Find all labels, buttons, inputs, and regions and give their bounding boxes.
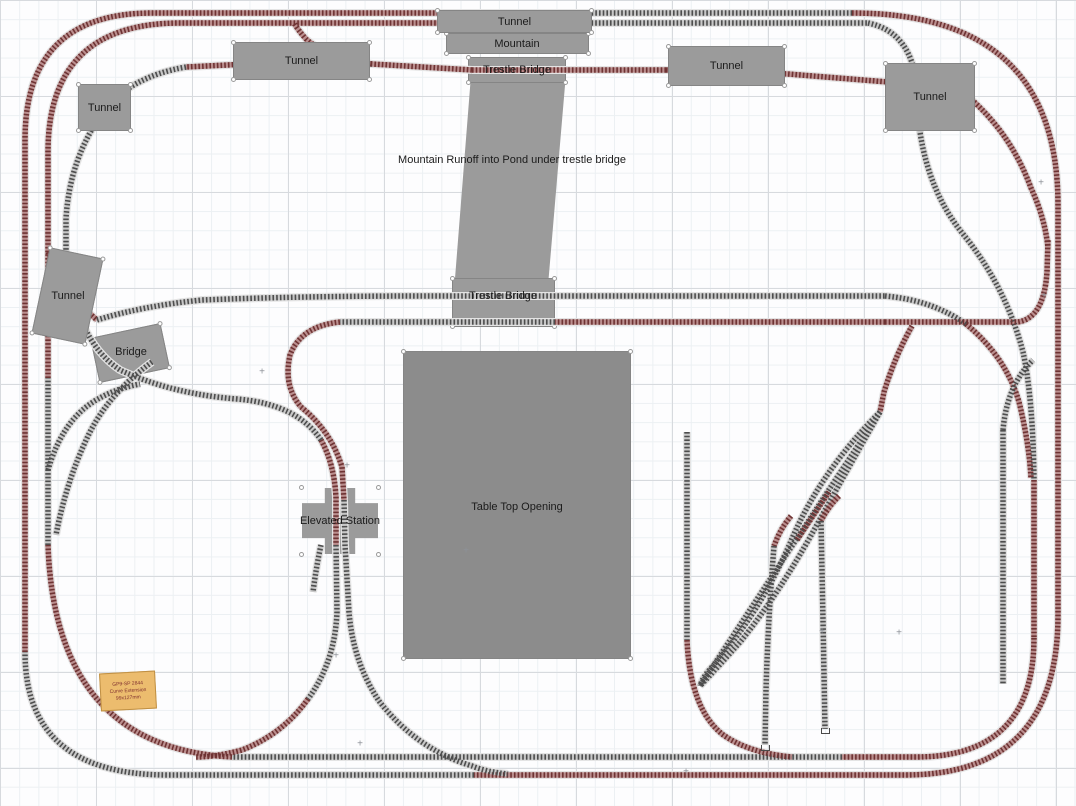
selection-handle[interactable]	[435, 8, 440, 13]
selection-handle[interactable]	[231, 40, 236, 45]
tunnel-small-top-left-box[interactable]: Tunnel	[78, 84, 131, 131]
tunnel-label: Tunnel	[913, 91, 946, 103]
anchor-plus-mark: +	[258, 368, 267, 377]
selection-handle[interactable]	[782, 44, 787, 49]
anchor-plus-mark: +	[895, 629, 904, 638]
tunnel-label: Tunnel	[51, 290, 84, 302]
selection-handle[interactable]	[231, 77, 236, 82]
selection-handle[interactable]	[76, 128, 81, 133]
track-plan-canvas: Tunnel Tunnel Tunnel Tunnel Tunnel Tunne…	[0, 0, 1076, 806]
anchor-plus-mark: +	[462, 547, 471, 556]
selection-handle[interactable]	[666, 44, 671, 49]
selection-handle[interactable]	[435, 30, 440, 35]
anchor-plus-mark: +	[682, 768, 691, 777]
tunnel-label: Tunnel	[710, 60, 743, 72]
track-info-tag[interactable]: GP9-SP 2844 Curve Extension 99x127mm	[99, 671, 157, 712]
selection-handle[interactable]	[367, 77, 372, 82]
tunnel-top-right-box[interactable]: Tunnel	[668, 46, 785, 86]
selection-handle[interactable]	[100, 256, 106, 262]
selection-handle[interactable]	[128, 128, 133, 133]
anchor-plus-mark: +	[1040, 292, 1049, 301]
selection-handle[interactable]	[883, 128, 888, 133]
selection-handle[interactable]	[82, 341, 88, 347]
selection-handle[interactable]	[47, 245, 53, 251]
selection-handle[interactable]	[972, 61, 977, 66]
tunnel-far-right-box[interactable]: Tunnel	[885, 63, 975, 131]
selection-handle[interactable]	[883, 61, 888, 66]
tunnel-left-rotated-box[interactable]: Tunnel	[31, 247, 103, 345]
tunnel-top-center-box[interactable]: Tunnel	[437, 10, 592, 33]
tunnel-label: Tunnel	[285, 55, 318, 67]
tunnel-top-left-box[interactable]: Tunnel	[233, 42, 370, 80]
anchor-plus-mark: +	[343, 462, 352, 471]
selection-handle[interactable]	[589, 30, 594, 35]
tunnel-label: Tunnel	[88, 102, 121, 114]
anchor-plus-mark: +	[356, 740, 365, 749]
selection-handle[interactable]	[972, 128, 977, 133]
selection-handle[interactable]	[782, 83, 787, 88]
selection-handle[interactable]	[367, 40, 372, 45]
anchor-plus-mark: +	[818, 628, 827, 637]
anchor-plus-mark: +	[332, 652, 341, 661]
selection-handle[interactable]	[76, 82, 81, 87]
selection-handle[interactable]	[589, 8, 594, 13]
selection-handle[interactable]	[29, 330, 35, 336]
track-info-line3: 99x127mm	[116, 694, 141, 702]
selection-handle[interactable]	[128, 82, 133, 87]
selection-handle[interactable]	[666, 83, 671, 88]
tunnel-label: Tunnel	[498, 16, 531, 28]
anchor-plus-mark: +	[1037, 179, 1046, 188]
